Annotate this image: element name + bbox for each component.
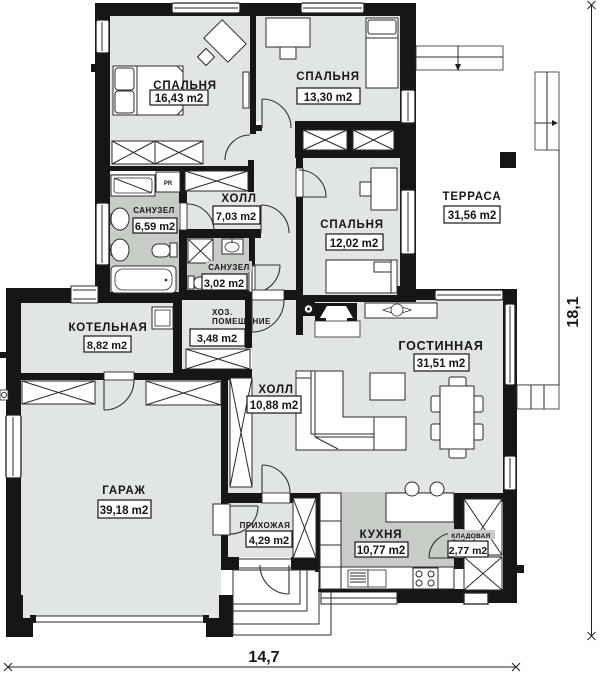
- svg-text:16,43 m2: 16,43 m2: [155, 93, 204, 105]
- svg-text:18,1: 18,1: [565, 296, 582, 327]
- svg-text:12,02 m2: 12,02 m2: [330, 238, 379, 250]
- svg-text:СПАЛЬНЯ: СПАЛЬНЯ: [296, 71, 360, 83]
- svg-text:САНУЗЕЛ: САНУЗЕЛ: [133, 206, 175, 215]
- svg-text:6,59 m2: 6,59 m2: [135, 221, 175, 233]
- svg-text:ТЕРРАСА: ТЕРРАСА: [443, 191, 502, 203]
- svg-text:2,77 m2: 2,77 m2: [449, 545, 488, 557]
- svg-text:39,18 m2: 39,18 m2: [100, 505, 149, 517]
- svg-text:ХОЗ.: ХОЗ.: [212, 308, 233, 317]
- svg-text:КУХНЯ: КУХНЯ: [360, 529, 403, 541]
- svg-text:3,02 m2: 3,02 m2: [204, 278, 244, 290]
- svg-text:8,82 m2: 8,82 m2: [87, 340, 127, 352]
- svg-text:7,03 m2: 7,03 m2: [216, 211, 256, 223]
- svg-text:3,48 m2: 3,48 m2: [197, 333, 237, 345]
- svg-text:ГОСТИННАЯ: ГОСТИННАЯ: [398, 339, 483, 353]
- svg-text:КЛАДОВАЯ: КЛАДОВАЯ: [451, 533, 490, 540]
- svg-text:КОТЕЛЬНАЯ: КОТЕЛЬНАЯ: [68, 322, 147, 334]
- svg-text:31,51 m2: 31,51 m2: [417, 358, 466, 370]
- svg-text:ПРИХОЖАЯ: ПРИХОЖАЯ: [240, 521, 291, 530]
- svg-text:14,7: 14,7: [248, 649, 279, 666]
- svg-text:ПОМЕЩЕНИЕ: ПОМЕЩЕНИЕ: [212, 317, 271, 326]
- svg-text:31,56 m2: 31,56 m2: [448, 210, 497, 222]
- svg-text:САНУЗЕЛ: САНУЗЕЛ: [208, 263, 250, 272]
- svg-text:СПАЛЬНЯ: СПАЛЬНЯ: [320, 219, 384, 231]
- svg-text:10,77 m2: 10,77 m2: [357, 545, 406, 557]
- svg-text:ХОЛЛ: ХОЛЛ: [221, 193, 256, 205]
- svg-text:10,88 m2: 10,88 m2: [250, 400, 299, 412]
- svg-text:ГАРАЖ: ГАРАЖ: [102, 485, 145, 497]
- svg-text:4,29 m2: 4,29 m2: [249, 535, 289, 547]
- svg-text:PR: PR: [164, 181, 173, 187]
- svg-text:ХОЛЛ: ХОЛЛ: [258, 384, 293, 396]
- svg-text:13,30 m2: 13,30 m2: [304, 92, 353, 104]
